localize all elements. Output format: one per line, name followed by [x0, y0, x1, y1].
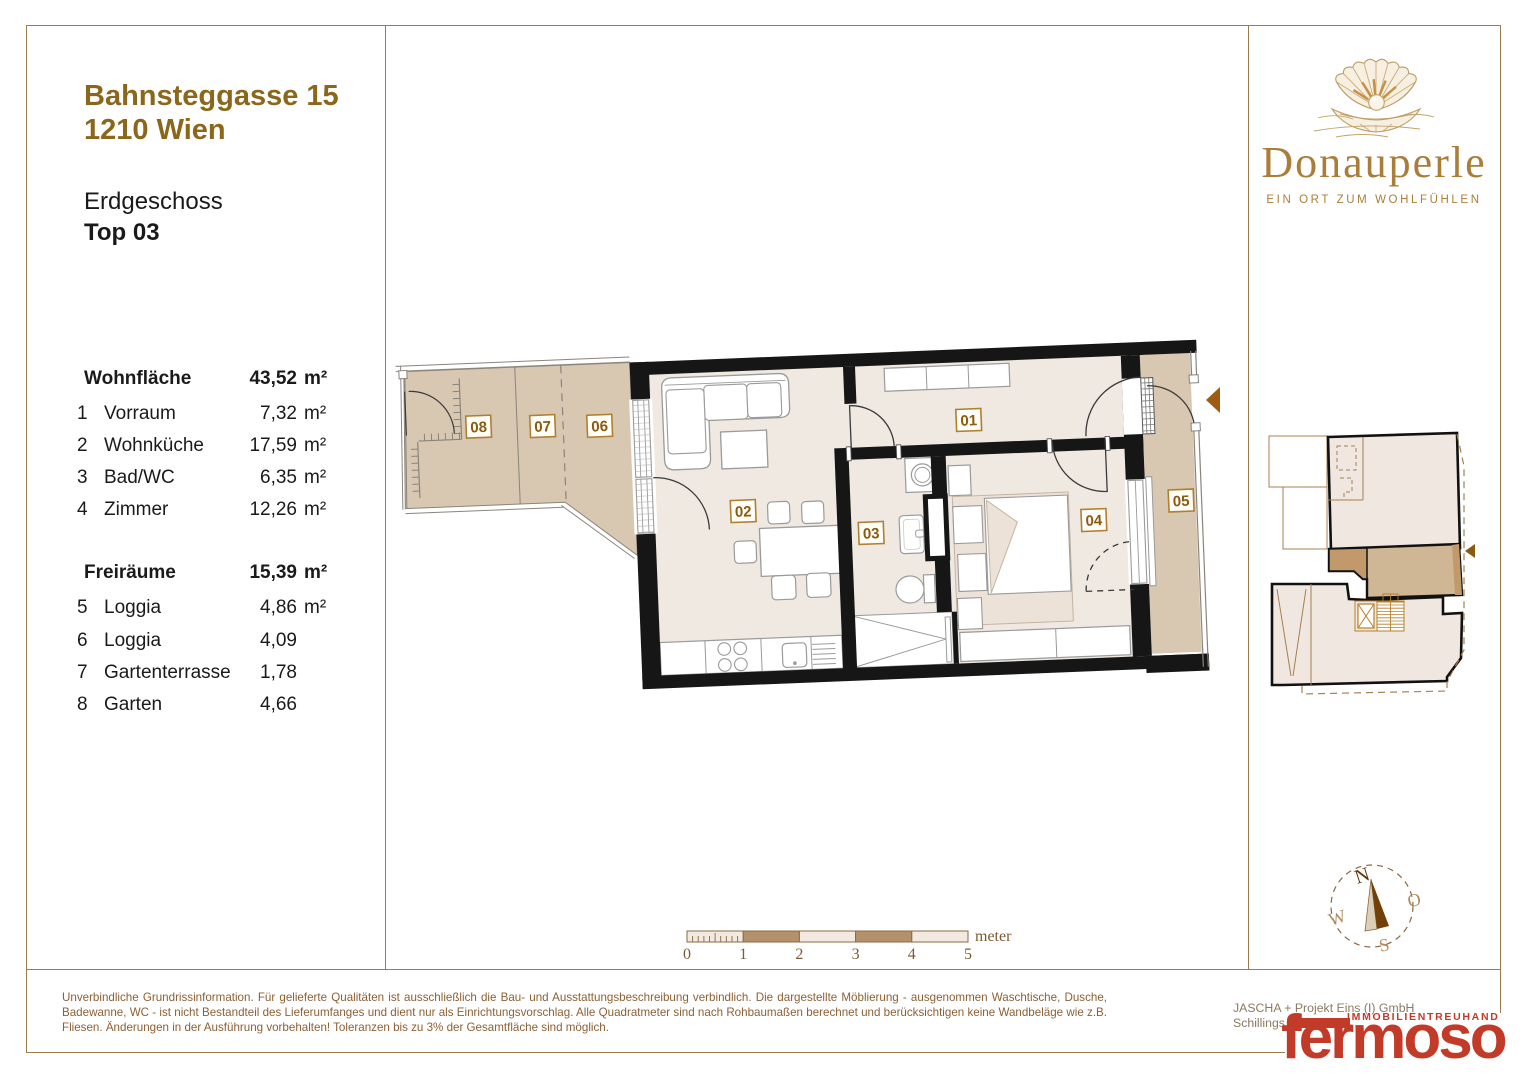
svg-text:04: 04	[1085, 512, 1103, 530]
svg-text:03: 03	[863, 525, 880, 543]
svg-text:3: 3	[852, 946, 860, 963]
svg-text:5: 5	[964, 946, 972, 963]
svg-text:N: N	[1352, 863, 1373, 888]
svg-text:06: 06	[591, 418, 608, 436]
svg-text:1: 1	[739, 946, 747, 963]
svg-text:02: 02	[735, 503, 752, 521]
svg-text:01: 01	[960, 412, 977, 430]
svg-text:07: 07	[534, 418, 551, 436]
svg-text:05: 05	[1172, 493, 1189, 511]
svg-text:08: 08	[470, 419, 487, 437]
svg-text:0: 0	[683, 946, 691, 963]
svg-text:4: 4	[908, 946, 916, 963]
svg-text:O: O	[1405, 889, 1422, 912]
svg-text:W: W	[1326, 906, 1348, 930]
svg-text:S: S	[1377, 934, 1391, 956]
svg-text:2: 2	[795, 946, 803, 963]
svg-text:meter: meter	[975, 928, 1012, 945]
